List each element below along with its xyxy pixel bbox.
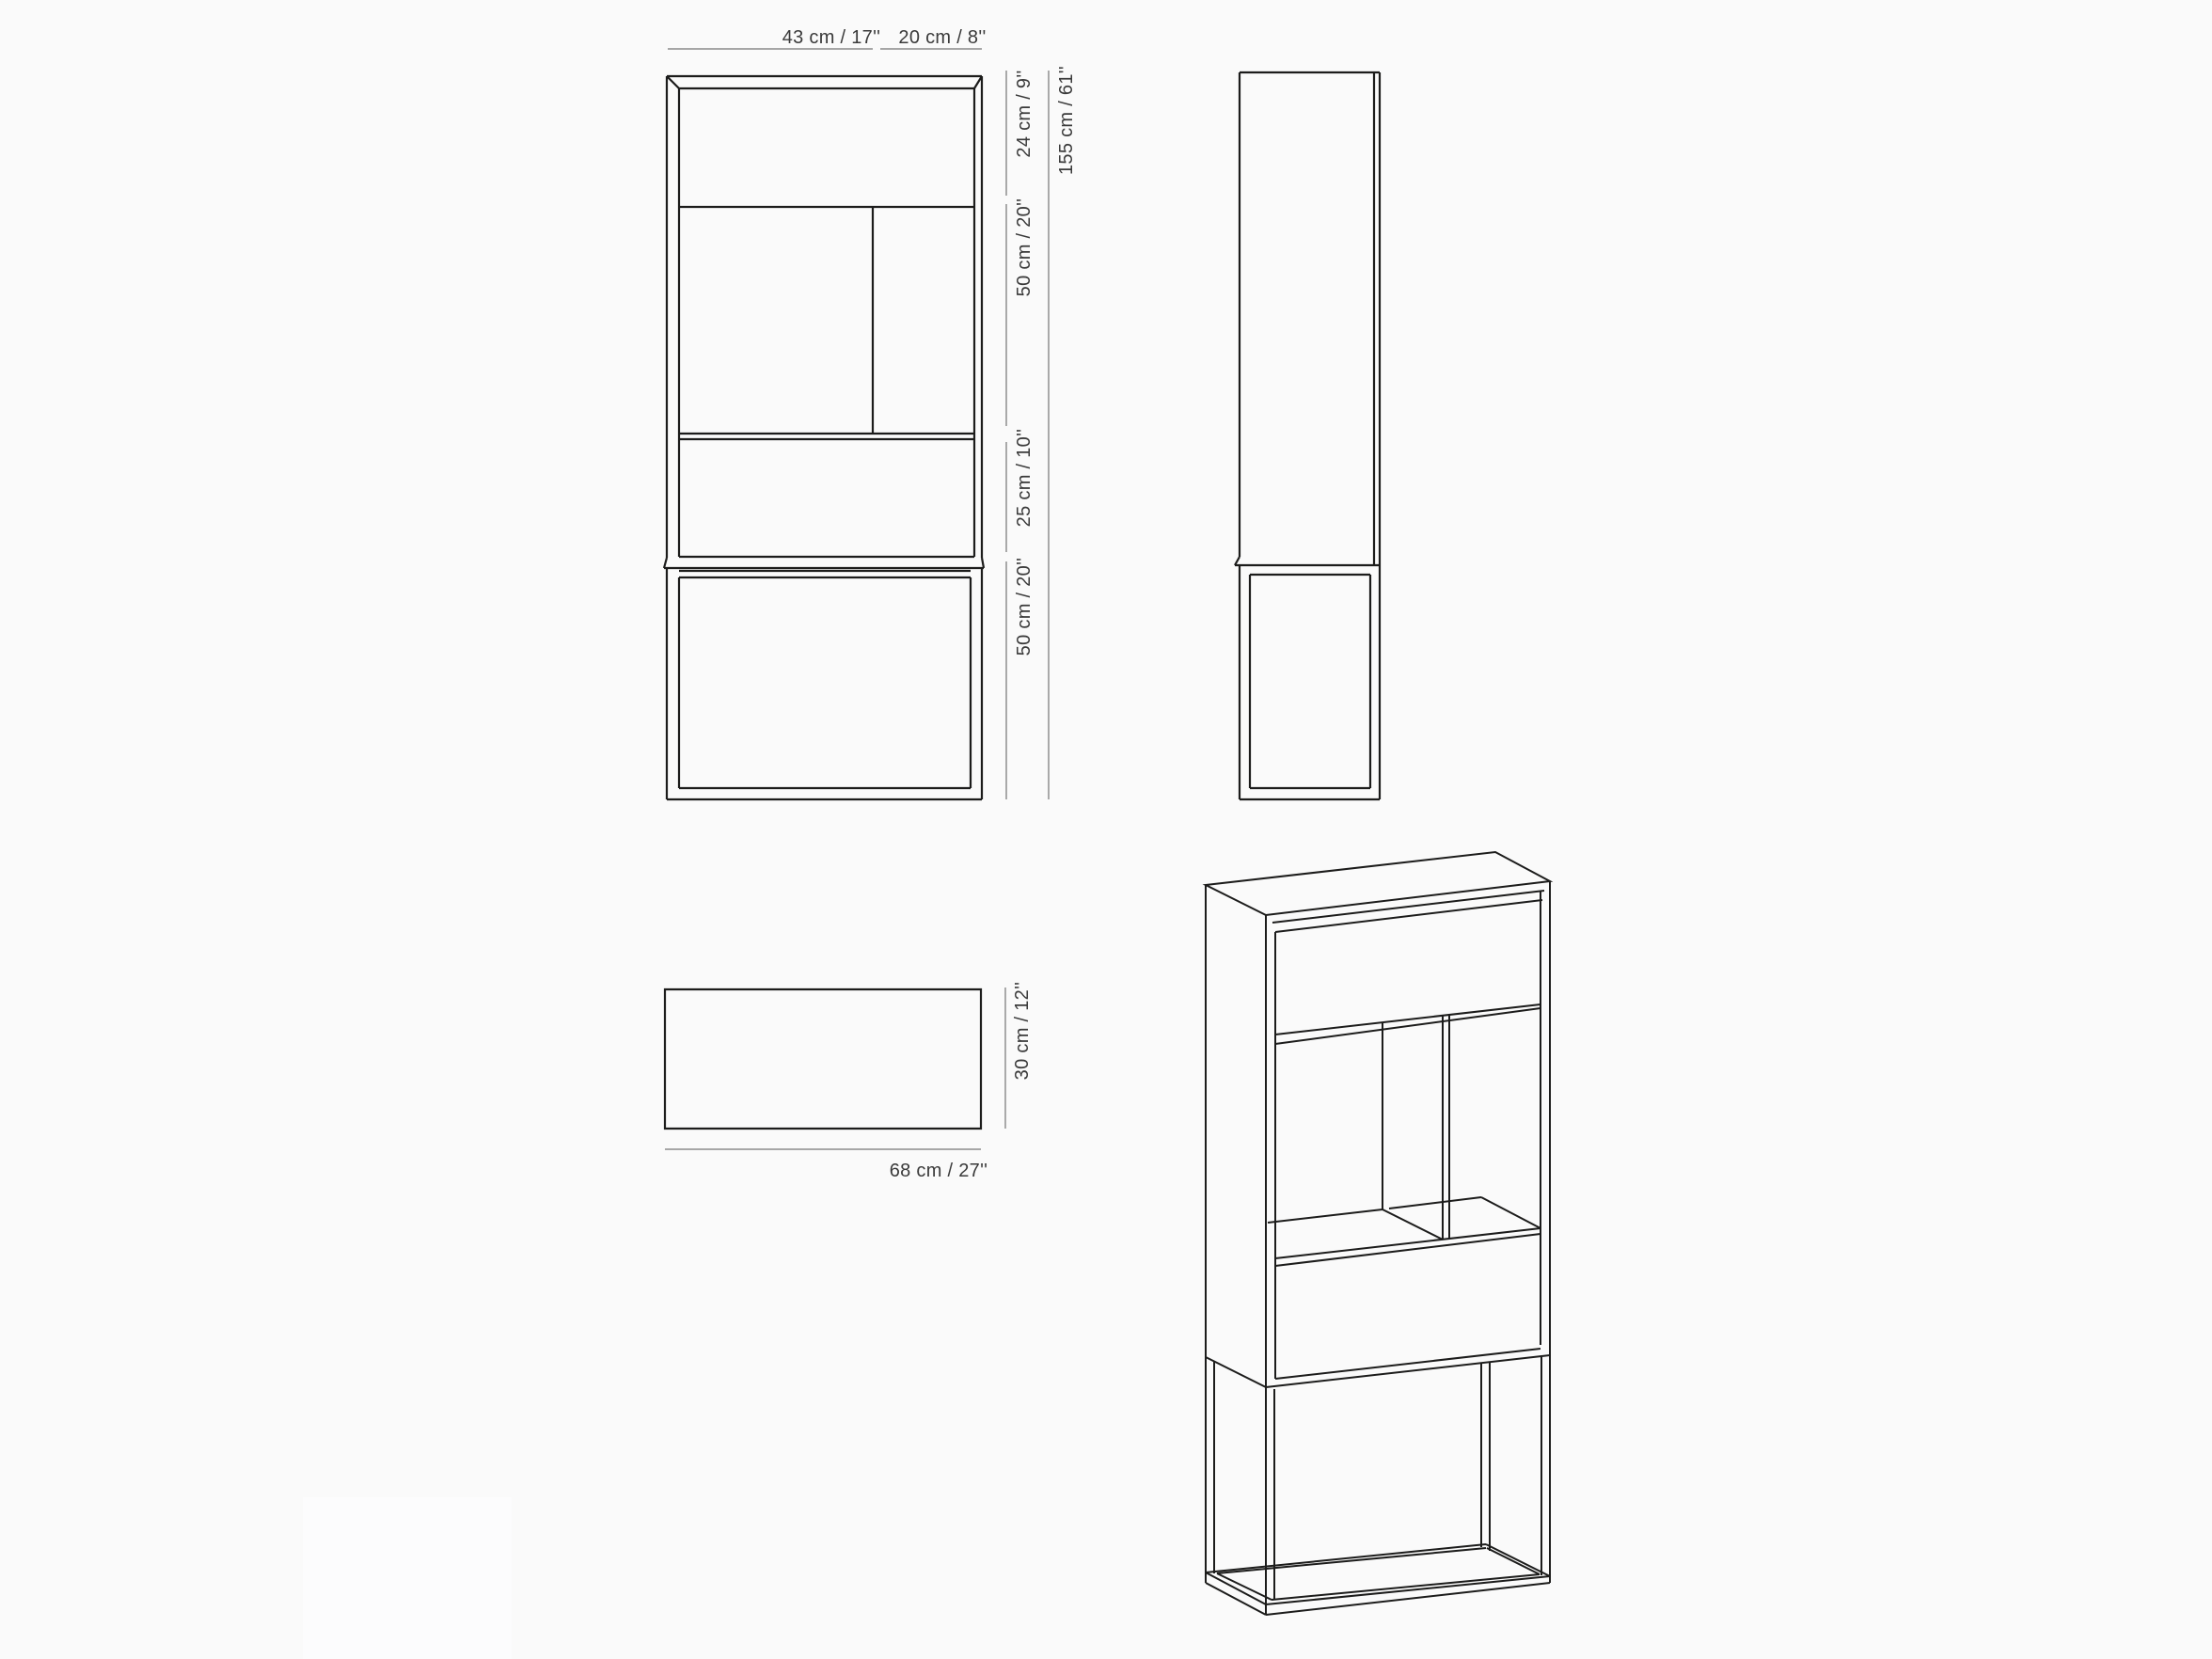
top-view-linework [665,989,981,1129]
dimension-lines [665,49,1049,1149]
dim-label-height-seg-3: 25 cm / 10'' [1015,429,1034,528]
dim-label-front-width-right: 20 cm / 8'' [898,28,986,47]
perspective-view-linework [1206,852,1550,1615]
technical-drawing [0,0,2212,1659]
dim-label-height-seg-1: 24 cm / 9'' [1015,70,1034,157]
side-view-linework [1235,72,1380,799]
front-view-linework [664,76,984,799]
blueprint-canvas: 43 cm / 17'' 20 cm / 8'' 24 cm / 9'' 50 … [0,0,2212,1659]
faint-watermark [303,1497,512,1659]
dim-label-height-seg-2: 50 cm / 20'' [1015,198,1034,297]
dim-label-total-height: 155 cm / 61'' [1057,66,1076,175]
dim-label-front-width-left: 43 cm / 17'' [782,28,881,47]
dim-label-height-seg-4: 50 cm / 20'' [1015,558,1034,656]
dim-label-plan-depth: 30 cm / 12'' [1013,982,1032,1081]
dim-label-plan-width: 68 cm / 27'' [890,1161,988,1180]
